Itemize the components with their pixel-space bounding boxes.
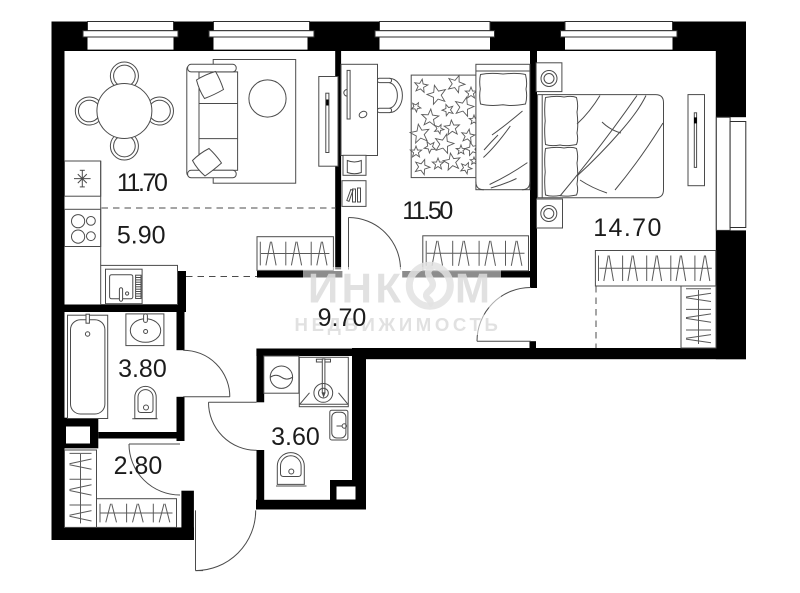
svg-text:11.70: 11.70: [117, 169, 167, 197]
svg-text:5.90: 5.90: [117, 222, 166, 250]
svg-text:14.70: 14.70: [593, 214, 663, 242]
svg-text:3.80: 3.80: [118, 355, 167, 383]
svg-text:М: М: [455, 265, 490, 312]
svg-text:2.80: 2.80: [114, 452, 163, 480]
svg-text:9.70: 9.70: [318, 304, 367, 332]
svg-text:3.60: 3.60: [271, 423, 320, 451]
svg-text:11.50: 11.50: [402, 197, 452, 225]
